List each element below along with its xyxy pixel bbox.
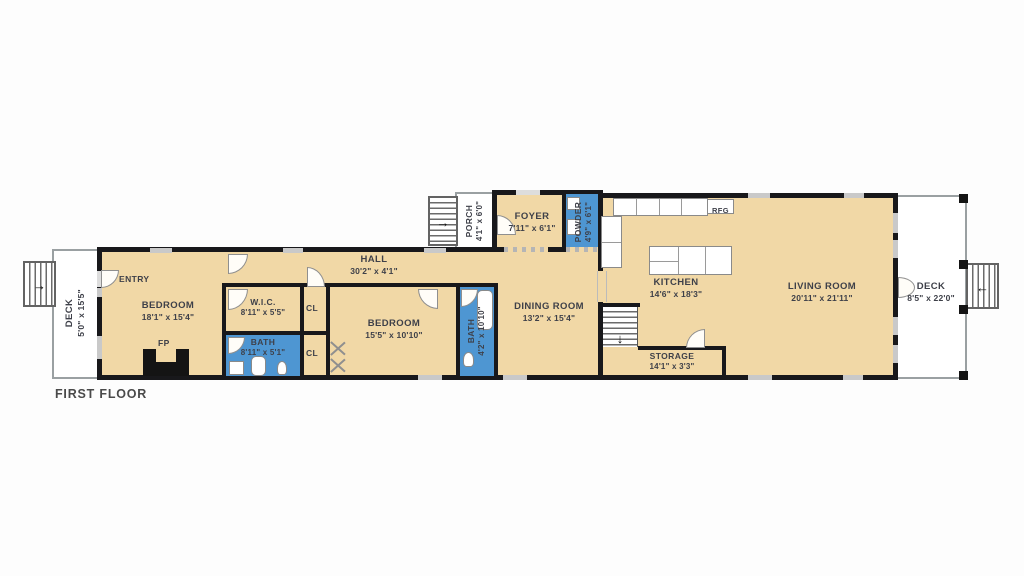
window (418, 375, 442, 380)
room-label-bedroom2: BEDROOM 15'5" x 10'10" (344, 318, 444, 341)
floor-plan: → → ← (0, 0, 1024, 576)
room-label-hall: HALL 30'2" x 4'1" (324, 254, 424, 277)
window (283, 248, 303, 253)
sliding-door-glass (893, 240, 898, 258)
sink (229, 361, 244, 375)
window (97, 288, 102, 297)
room-label-dining: DINING ROOM 13'2" x 15'4" (499, 301, 599, 324)
stairs-to-basement: ↓ (603, 307, 638, 347)
wall (300, 331, 330, 335)
bathtub (251, 356, 266, 376)
stairs-direction-arrow: → (25, 279, 54, 292)
room-label-foyer: FOYER 7'11" x 6'1" (492, 211, 572, 234)
bifold-closet-door (330, 340, 346, 374)
stairs-direction-arrow: → (430, 216, 456, 229)
room-label-porch: PORCH 4'1" x 6'0" (464, 193, 484, 249)
deck-post (959, 371, 968, 380)
refrigerator: RFG (707, 199, 734, 214)
cased-opening (504, 247, 548, 252)
deck-post (959, 260, 968, 269)
fireplace (143, 349, 189, 376)
room-label-kitchen: KITCHEN 14'6" x 18'3" (626, 277, 726, 300)
wall (494, 283, 498, 380)
room-label-powder: POWDER 4'9" x 6'1" (573, 193, 593, 251)
window (150, 248, 172, 253)
room-label-deck-right: DECK 8'5" x 22'0" (881, 281, 981, 304)
kitchen-island (649, 246, 732, 275)
sliding-door-glass (893, 213, 898, 233)
room-label-bath2: BATH 4'2" x 10'10" (466, 294, 488, 368)
room-label-bath1: BATH 8'11" x 5'1" (228, 337, 298, 358)
sliding-door-glass (893, 345, 898, 363)
window (844, 193, 864, 198)
room-label-entry: ENTRY (119, 274, 150, 284)
refrigerator-label: RFG (712, 206, 729, 215)
window (97, 336, 102, 359)
kitchen-counter-left (601, 216, 622, 268)
window (424, 248, 446, 253)
stairs-left-deck: → (23, 261, 56, 307)
front-door-opening (516, 190, 540, 195)
deck-post (959, 305, 968, 314)
stairs-direction-arrow: ↓ (603, 332, 637, 345)
sliding-door-glass (893, 317, 898, 335)
room-label-wic: W.I.C. 8'11" x 5'5" (228, 297, 298, 318)
room-label-cl1: CL (306, 303, 318, 313)
fireplace-label: FP (158, 338, 170, 348)
kitchen-counter-top (613, 198, 708, 216)
window (843, 375, 863, 380)
room-label-bedroom1: BEDROOM 18'1" x 15'4" (118, 300, 218, 323)
floor-title: FIRST FLOOR (55, 387, 147, 401)
stairs-porch: → (428, 196, 458, 246)
cased-opening (597, 271, 607, 302)
fireplace-notch (156, 349, 176, 362)
wall (638, 346, 726, 350)
room-label-deck-left: DECK 5'0" x 15'5" (64, 277, 86, 349)
room-label-living: LIVING ROOM 20'11" x 21'11" (762, 281, 882, 304)
deck-post (959, 194, 968, 203)
room-label-storage: STORAGE 14'1" x 3'3" (612, 351, 732, 372)
window (748, 193, 770, 198)
window (503, 375, 527, 380)
room-label-cl2: CL (306, 348, 318, 358)
toilet (277, 361, 287, 375)
window (748, 375, 772, 380)
